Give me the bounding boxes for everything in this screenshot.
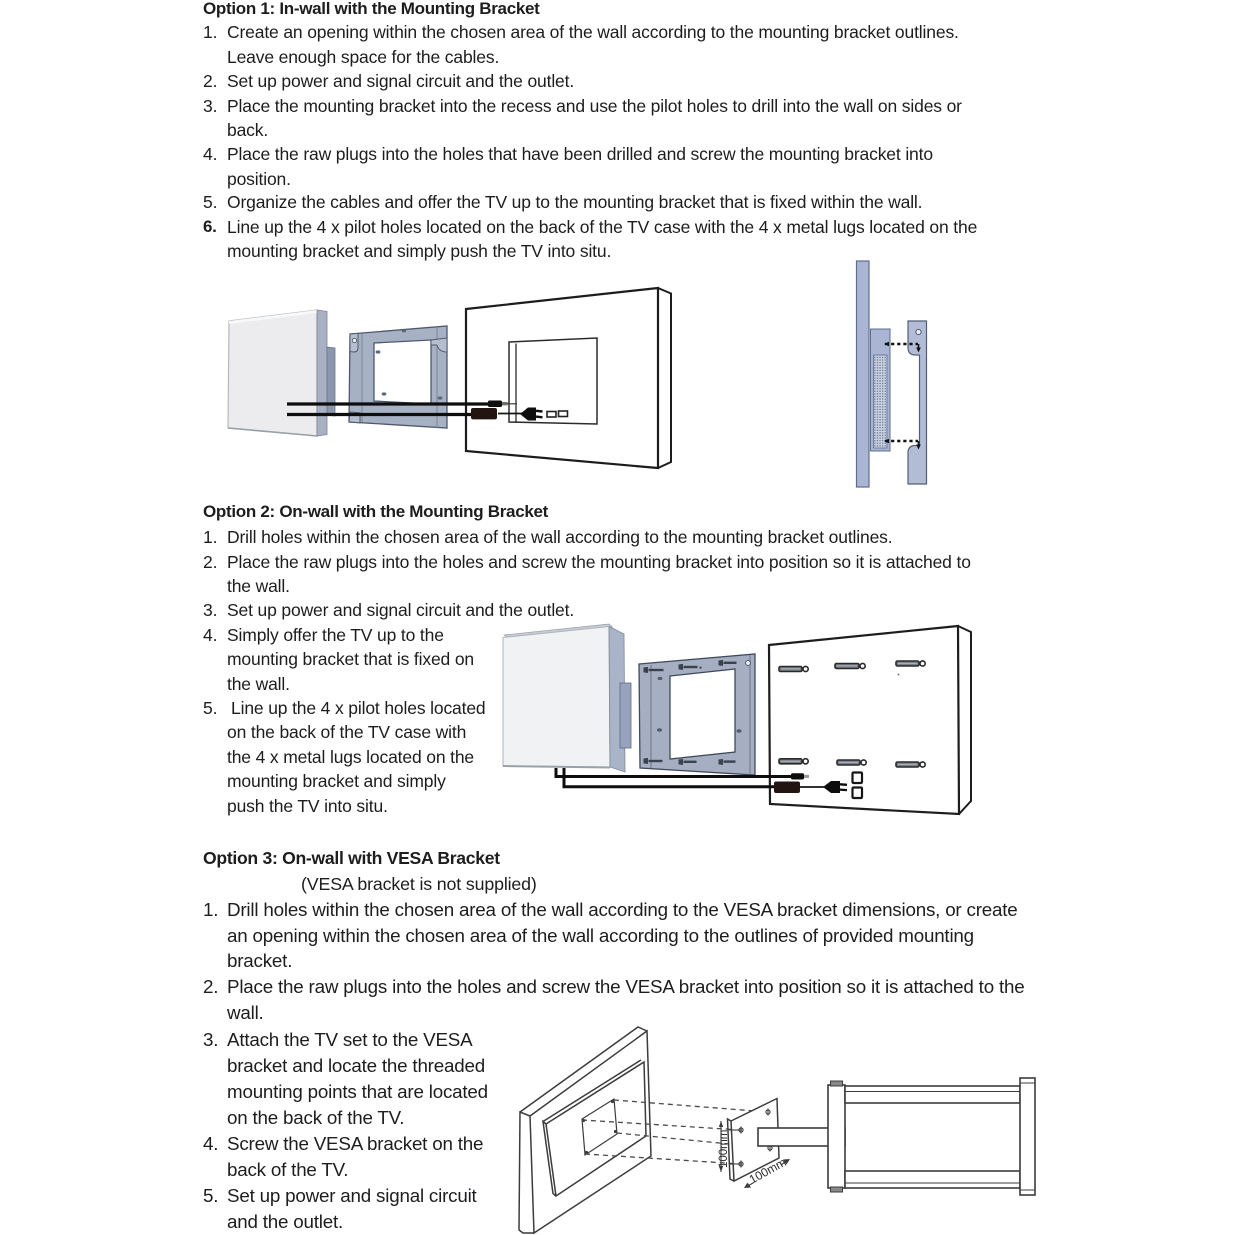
svg-text:100mm: 100mm (718, 1130, 730, 1168)
